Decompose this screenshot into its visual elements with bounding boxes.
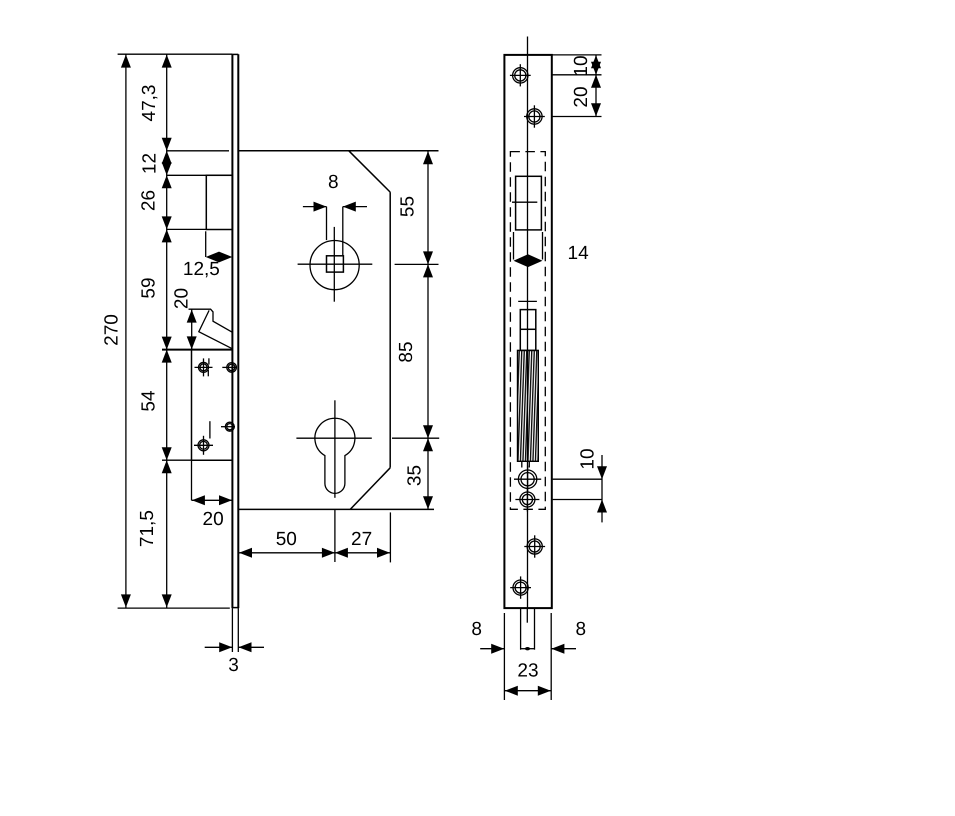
svg-text:59: 59	[138, 277, 159, 298]
svg-text:20: 20	[171, 288, 192, 309]
svg-text:12,5: 12,5	[183, 259, 220, 280]
svg-text:12: 12	[140, 153, 161, 174]
svg-text:71,5: 71,5	[137, 510, 158, 547]
svg-text:8: 8	[471, 619, 482, 640]
svg-text:55: 55	[398, 196, 419, 217]
svg-text:50: 50	[276, 529, 297, 550]
svg-text:3: 3	[228, 655, 239, 676]
svg-text:270: 270	[101, 314, 122, 346]
svg-text:26: 26	[139, 190, 160, 211]
svg-text:27: 27	[351, 529, 372, 550]
svg-text:8: 8	[576, 619, 587, 640]
svg-text:20: 20	[203, 509, 224, 530]
svg-text:35: 35	[405, 465, 426, 486]
svg-text:14: 14	[568, 243, 590, 264]
svg-text:47,3: 47,3	[139, 85, 160, 122]
svg-text:85: 85	[396, 341, 417, 362]
svg-text:20: 20	[571, 86, 592, 107]
svg-text:8: 8	[328, 172, 339, 193]
svg-text:23: 23	[517, 661, 538, 682]
svg-text:54: 54	[138, 390, 159, 412]
svg-text:10: 10	[578, 448, 599, 469]
svg-text:10: 10	[571, 55, 592, 76]
